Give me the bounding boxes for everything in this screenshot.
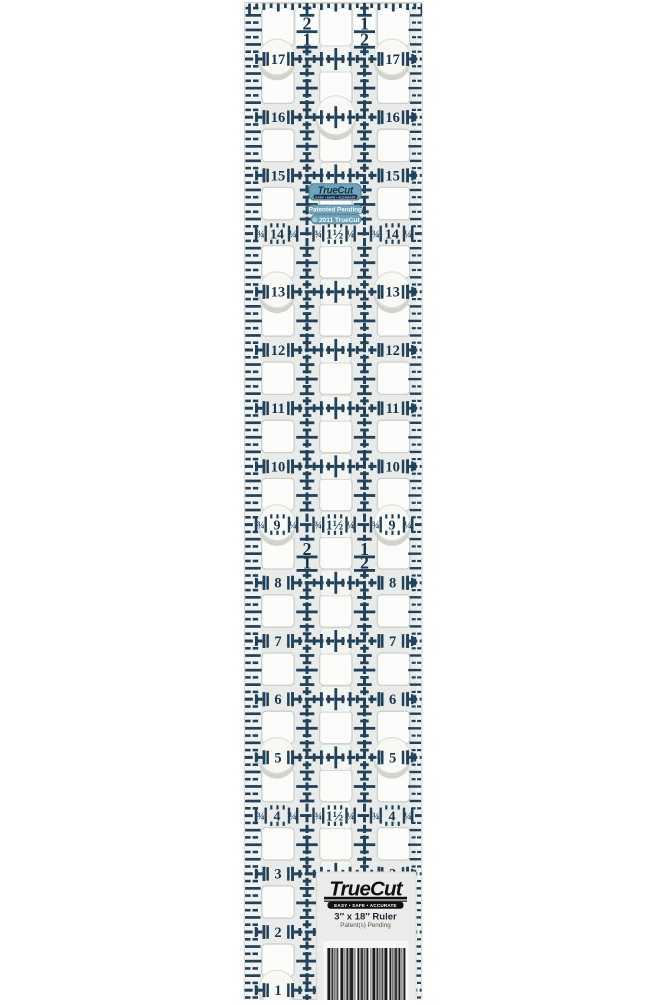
- svg-text:6: 6: [389, 692, 396, 708]
- svg-text:1: 1: [303, 553, 312, 573]
- svg-text:Patented Pending: Patented Pending: [309, 207, 362, 214]
- svg-text:¼: ¼: [289, 230, 297, 241]
- svg-text:¾: ¾: [315, 230, 323, 241]
- svg-text:8: 8: [389, 576, 396, 592]
- svg-text:16: 16: [271, 110, 286, 126]
- svg-text:2: 2: [360, 553, 369, 573]
- svg-text:15: 15: [385, 168, 400, 184]
- svg-text:EASY • SAFE • ACCURATE: EASY • SAFE • ACCURATE: [334, 903, 397, 908]
- svg-text:10: 10: [385, 459, 400, 475]
- svg-text:15: 15: [271, 168, 286, 184]
- svg-text:5: 5: [274, 750, 281, 766]
- svg-text:8: 8: [274, 576, 281, 592]
- svg-text:¾: ¾: [372, 230, 380, 241]
- svg-text:¾: ¾: [257, 521, 265, 532]
- svg-text:¾: ¾: [315, 521, 323, 532]
- svg-text:11: 11: [386, 401, 400, 417]
- svg-text:2: 2: [274, 925, 281, 941]
- svg-text:¼: ¼: [347, 812, 355, 823]
- svg-text:14: 14: [385, 228, 399, 243]
- svg-text:5: 5: [389, 750, 396, 766]
- svg-text:1½: 1½: [326, 810, 344, 825]
- svg-text:13: 13: [385, 285, 400, 301]
- svg-text:6: 6: [274, 692, 281, 708]
- svg-text:13: 13: [271, 285, 286, 301]
- svg-text:4: 4: [389, 810, 396, 825]
- svg-text:© 2011 TrueCut: © 2011 TrueCut: [312, 216, 360, 224]
- svg-text:¼: ¼: [289, 521, 297, 532]
- svg-text:¼: ¼: [404, 812, 412, 823]
- svg-text:4: 4: [274, 810, 281, 825]
- svg-text:1: 1: [274, 983, 281, 999]
- svg-text:7: 7: [274, 634, 281, 650]
- svg-text:¾: ¾: [257, 812, 265, 823]
- svg-text:1½: 1½: [326, 519, 344, 534]
- svg-text:16: 16: [385, 110, 400, 126]
- svg-text:3″ x 18″ Ruler: 3″ x 18″ Ruler: [334, 911, 397, 922]
- svg-text:17: 17: [385, 52, 400, 68]
- svg-text:1½: 1½: [326, 228, 344, 243]
- svg-text:1: 1: [303, 29, 312, 49]
- svg-text:14: 14: [270, 228, 284, 243]
- svg-text:¼: ¼: [404, 230, 412, 241]
- svg-text:2: 2: [360, 29, 369, 49]
- svg-text:¾: ¾: [315, 812, 323, 823]
- svg-text:9: 9: [274, 519, 281, 534]
- svg-text:12: 12: [385, 343, 400, 359]
- svg-text:¼: ¼: [404, 521, 412, 532]
- svg-text:EASY • SAFE • ACCURATE: EASY • SAFE • ACCURATE: [315, 195, 355, 199]
- svg-text:7: 7: [389, 634, 396, 650]
- svg-text:9: 9: [389, 519, 396, 534]
- svg-text:12: 12: [271, 343, 286, 359]
- svg-text:10: 10: [271, 459, 286, 475]
- svg-text:3: 3: [274, 867, 281, 883]
- svg-text:¼: ¼: [289, 812, 297, 823]
- svg-text:¼: ¼: [347, 521, 355, 532]
- svg-text:Patent(s) Pending: Patent(s) Pending: [340, 922, 391, 929]
- svg-text:11: 11: [271, 401, 285, 417]
- svg-text:¾: ¾: [372, 521, 380, 532]
- svg-text:17: 17: [271, 52, 286, 68]
- svg-text:¾: ¾: [372, 812, 380, 823]
- svg-text:¼: ¼: [347, 230, 355, 241]
- svg-text:¾: ¾: [257, 230, 265, 241]
